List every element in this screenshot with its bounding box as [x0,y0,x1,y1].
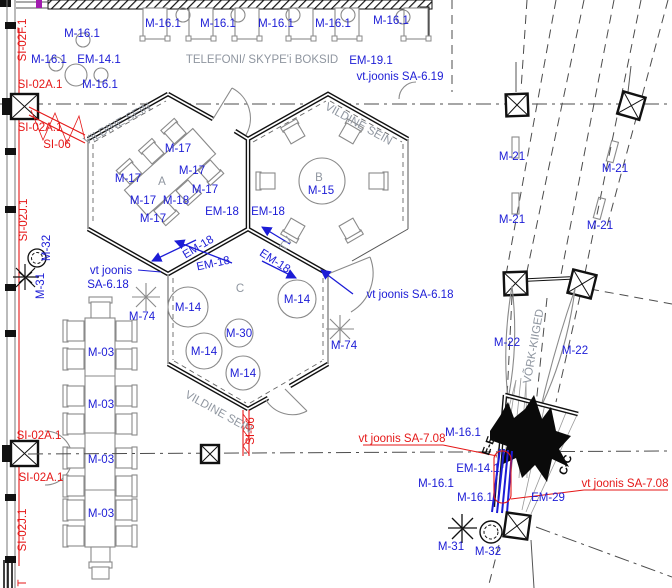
wall-post [0,0,11,7]
plant-star-icon [326,315,354,343]
label-si02j-1-a: SI-02J.1 [18,199,30,242]
label-m03-2: M-03 [88,399,114,411]
label-m14-2: M-14 [284,294,311,306]
label-telefoni-skype-boksid: TELEFONI/ SKYPE'i BOKSID [186,54,338,66]
label-m03-4: M-03 [88,508,114,520]
label-m74-left: M-74 [129,311,156,323]
label-si02f-1: SI-02F.1 [17,19,29,62]
label-m21-4: M-21 [587,220,613,232]
label-m16-1-e: M-16.1 [418,478,454,490]
label-si02a-1-b: SI-02A.1 [18,122,63,134]
column-right-4 [567,269,596,298]
label-m17-6: M-17 [140,213,166,225]
column-bottom-right [503,512,530,539]
column-right-1 [506,94,529,117]
label-vt-joonis-sa-7-08-right: vt joonis SA-7.08 [582,478,669,490]
magenta-marker [36,0,42,8]
column-mid-bottom [201,445,219,463]
label-m21-3: M-21 [499,214,525,226]
label-m16-1-booth2: M-16.1 [200,18,236,30]
floor-plan-canvas: M-16.1M-16.1EM-14.1M-16.1M-16.1M-16.1M-1… [0,0,672,588]
label-m16-1-c: M-16.1 [82,79,118,91]
label-vt-joonis-line2: SA-6.18 [87,279,129,291]
label-si02a-1-a: SI-02A.1 [18,79,63,91]
label-m17-2: M-17 [179,165,205,177]
label-em14-1-a: EM-14.1 [77,54,120,66]
label-m21-2: M-21 [602,163,628,175]
label-booth-a: A [158,176,166,188]
label-si02a-1-c: SI-02A.1 [17,430,62,442]
label-m17-3: M-17 [115,173,141,185]
label-vt-joonis-sa-7-08-left: vt joonis SA-7.08 [359,433,446,445]
label-vt-joonis-sa-6-18-right: vt joonis SA-6.18 [367,289,454,301]
label-m31-left: M-31 [35,273,47,299]
label-m30: M-30 [226,328,252,340]
label-booth-b: B [315,172,323,184]
label-m32-right: M-32 [475,546,501,558]
label-m16-1-booth4: M-16.1 [315,18,351,30]
plant-star-icon [132,283,160,311]
label-em29: EM-29 [531,492,565,504]
label-si02j-1-b: SI-02J.1 [17,509,29,552]
label-m14-4: M-14 [230,368,257,380]
label-m17-5: M-17 [130,195,156,207]
label-m14-1: M-14 [175,302,202,314]
label-m16-1-b: M-16.1 [31,54,67,66]
label-m31-right: M-31 [438,541,464,553]
label-m03-1: M-03 [88,347,114,359]
floor-plan-page: M-16.1M-16.1EM-14.1M-16.1M-16.1M-16.1M-1… [0,0,672,588]
label-em18-2: EM-18 [251,206,285,218]
label-m22-2: M-22 [562,345,588,357]
label-em18-1: EM-18 [205,206,239,218]
label-m16-1-booth3: M-16.1 [258,18,294,30]
plant-icon [448,514,477,543]
label-m18: M-18 [163,195,189,207]
label-partial-t: T [17,579,29,586]
label-si06-left: SI-06 [43,139,71,151]
label-m17-4: M-17 [192,184,218,196]
label-m32-left: M-32 [41,235,53,261]
column-right-2 [617,91,645,119]
label-m14-3: M-14 [191,346,218,358]
label-m16-1-d: M-16.1 [445,427,481,439]
label-m17-1: M-17 [165,143,191,155]
label-em14-1-b: EM-14.1 [456,463,499,475]
label-em19-1: EM-19.1 [349,55,392,67]
label-vt-joonis-sa-6-19: vt.joonis SA-6.19 [357,71,444,83]
label-m03-3: M-03 [88,454,114,466]
label-m16-1-booth5: M-16.1 [373,15,409,27]
label-booth-c: C [236,283,244,295]
label-si02a-1-d: SI-02A.1 [19,472,64,484]
label-m16-1-booth1: M-16.1 [145,18,181,30]
label-m16-1-a: M-16.1 [64,28,100,40]
label-m22-1: M-22 [494,337,520,349]
column-right-3 [504,272,528,296]
label-m74-right: M-74 [331,340,358,352]
label-m16-1-f: M-16.1 [457,492,493,504]
label-vt-joonis-line1: vt joonis [90,265,132,277]
label-m15: M-15 [308,185,334,197]
label-m21-1: M-21 [499,151,525,163]
